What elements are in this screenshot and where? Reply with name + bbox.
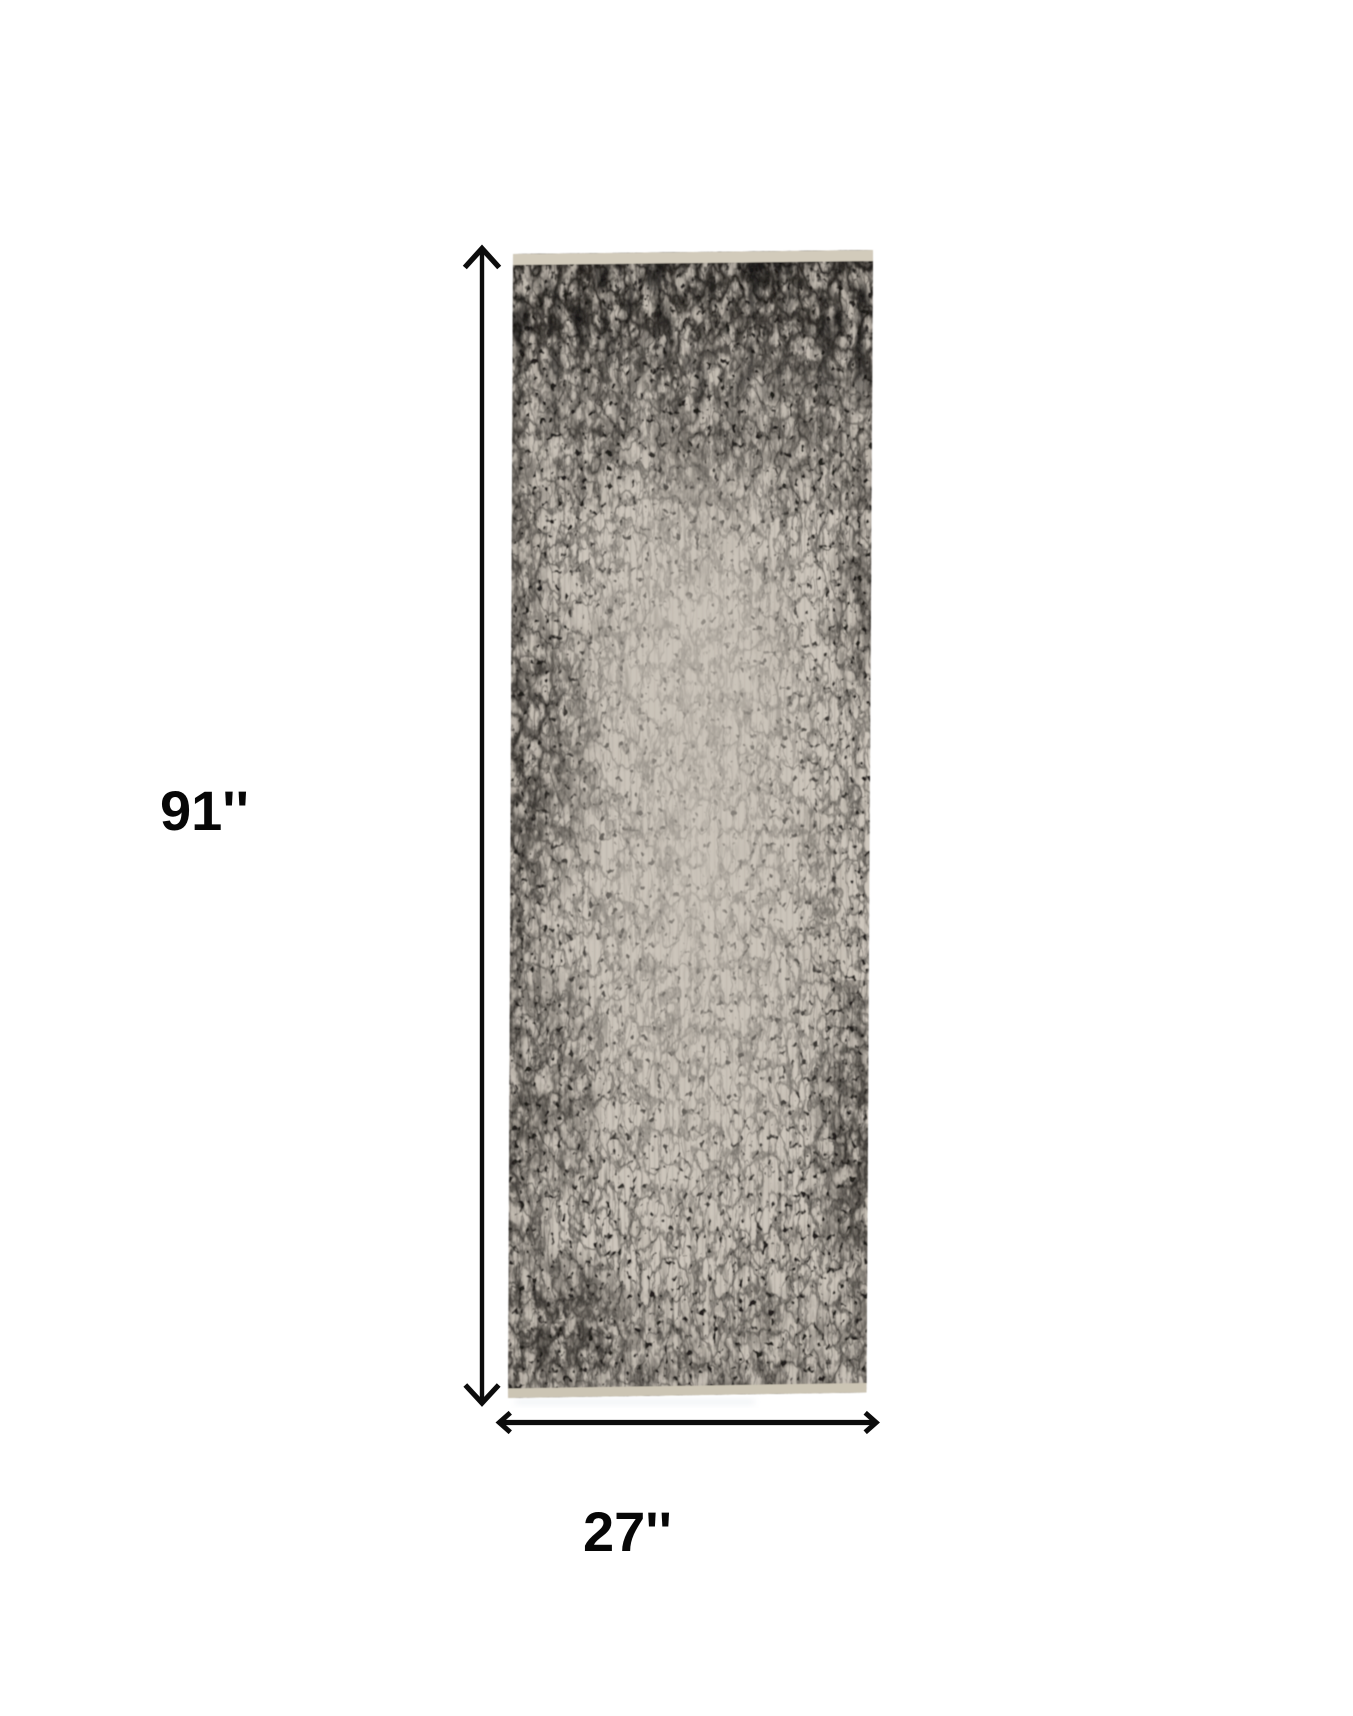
- svg-text:27'': 27'': [583, 1500, 672, 1563]
- svg-text:91'': 91'': [160, 779, 249, 842]
